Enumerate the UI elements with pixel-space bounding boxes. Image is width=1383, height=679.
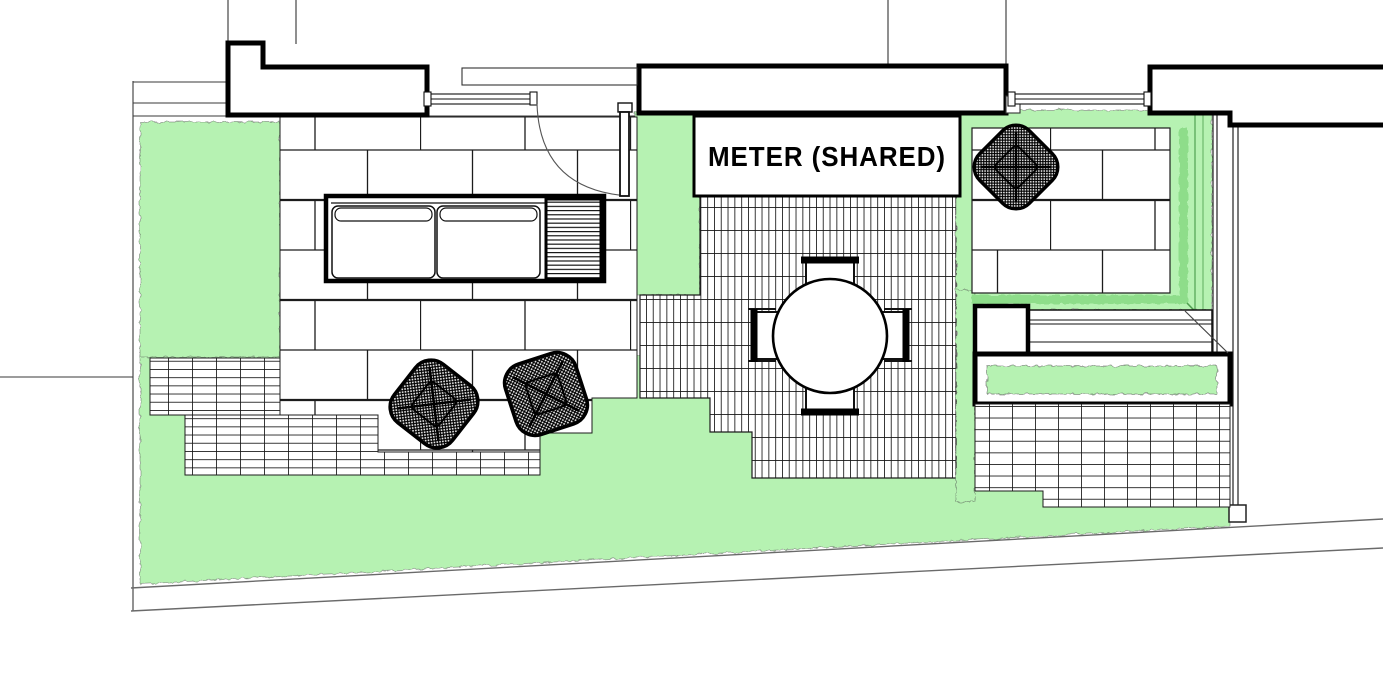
window-left-cap-a <box>424 92 431 106</box>
seating-right <box>975 306 1230 404</box>
frame-shadow-right <box>1179 128 1188 304</box>
door-jamb <box>618 103 632 112</box>
buildings <box>228 0 1383 125</box>
lawn-strip-center <box>635 112 700 295</box>
garden-plan: METER (SHARED) <box>0 0 1383 679</box>
door-leaf <box>620 112 629 196</box>
window-right-cap-b <box>1144 92 1151 106</box>
grid-paving-left <box>150 358 280 415</box>
building-top-left <box>228 43 427 115</box>
planting-strip-right-side <box>956 290 975 502</box>
meter-label-text: METER (SHARED) <box>708 141 946 172</box>
dining-table <box>773 279 887 393</box>
plan-drawing: METER (SHARED) <box>0 0 1383 679</box>
bench <box>1028 310 1212 356</box>
side-table <box>546 199 601 279</box>
window-left <box>424 92 537 106</box>
window-left-cap-b <box>530 92 537 105</box>
lawn-left <box>140 122 280 357</box>
sofa <box>326 196 604 281</box>
sofa-pillow-right <box>440 208 537 221</box>
storage-box <box>975 306 1028 356</box>
planter-bed <box>987 366 1217 394</box>
meter-label: METER (SHARED) <box>694 116 960 196</box>
window-right <box>1008 92 1151 106</box>
building-neighbor-center <box>639 66 1006 113</box>
sofa-pillow-left <box>335 208 432 221</box>
corner-post <box>1229 505 1246 522</box>
frame-shadow-bottom <box>972 295 1187 304</box>
window-right-cap-a <box>1008 92 1015 106</box>
canopy <box>462 68 637 85</box>
